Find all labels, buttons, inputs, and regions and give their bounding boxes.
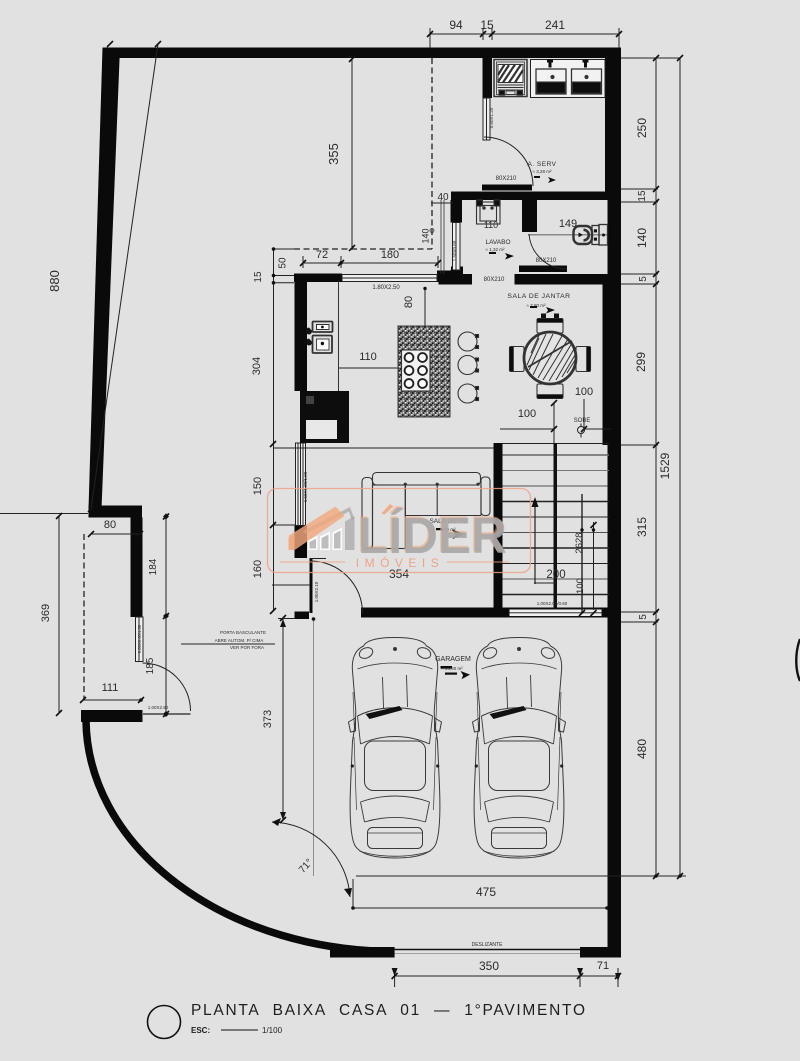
svg-text:880: 880	[47, 270, 62, 292]
svg-text:100: 100	[575, 386, 593, 398]
svg-text:80: 80	[403, 296, 415, 308]
svg-text:2628: 2628	[574, 532, 585, 553]
svg-text:140: 140	[421, 228, 431, 243]
svg-text:SALA DE JANTAR: SALA DE JANTAR	[507, 293, 570, 300]
svg-text:1529: 1529	[658, 452, 672, 479]
svg-text:DESLIZANTE: DESLIZANTE	[472, 942, 504, 948]
svg-text:≈ 3,28 m²: ≈ 3,28 m²	[533, 169, 552, 174]
svg-text:94: 94	[449, 18, 463, 32]
svg-text:VER POR FORA: VER POR FORA	[230, 645, 264, 650]
svg-text:184: 184	[148, 558, 159, 575]
svg-text:71: 71	[597, 960, 609, 972]
svg-text:LAVABO: LAVABO	[485, 239, 510, 246]
svg-text:0.80X0.60/1.50: 0.80X0.60/1.50	[137, 624, 142, 653]
svg-text:15: 15	[480, 18, 494, 32]
svg-text:1.00X2.00/0.60: 1.00X2.00/0.60	[537, 601, 568, 606]
svg-text:475: 475	[476, 885, 496, 899]
svg-text:350: 350	[479, 959, 499, 973]
svg-text:GARAGEM: GARAGEM	[435, 656, 471, 663]
svg-text:SOBE: SOBE	[574, 418, 591, 424]
svg-text:80: 80	[104, 519, 116, 531]
svg-text:1.50X0.60: 1.50X0.60	[452, 240, 457, 261]
svg-text:100: 100	[518, 408, 536, 420]
svg-text:299: 299	[634, 352, 648, 372]
svg-text:≈ 1,32 m²: ≈ 1,32 m²	[486, 247, 505, 252]
svg-text:373: 373	[262, 710, 274, 728]
svg-text:50: 50	[278, 257, 289, 269]
svg-text:180: 180	[381, 249, 399, 261]
svg-text:ABRE AUTOM. P/ CIMA: ABRE AUTOM. P/ CIMA	[215, 638, 264, 643]
svg-text:480: 480	[635, 739, 649, 759]
svg-text:160: 160	[252, 560, 264, 578]
svg-text:80X210: 80X210	[484, 277, 505, 283]
svg-text:5: 5	[638, 276, 649, 282]
svg-text:185: 185	[145, 657, 156, 674]
svg-text:0.60X1.20: 0.60X1.20	[489, 107, 494, 128]
svg-text:200: 200	[546, 569, 565, 581]
svg-text:369: 369	[40, 604, 52, 622]
svg-text:15: 15	[637, 190, 648, 202]
svg-text:1.00X2.50: 1.00X2.50	[148, 705, 169, 710]
svg-text:241: 241	[545, 18, 565, 32]
svg-text:72: 72	[316, 249, 328, 261]
svg-text:15: 15	[253, 271, 264, 283]
svg-text:1.50X1.20/1.00: 1.50X1.20/1.00	[303, 471, 308, 502]
svg-text:1.80X2.50: 1.80X2.50	[372, 285, 400, 291]
svg-text:1/100: 1/100	[262, 1026, 283, 1035]
svg-text:IMÓVEIS: IMÓVEIS	[356, 555, 445, 570]
svg-text:111: 111	[102, 682, 119, 694]
svg-text:80X210: 80X210	[536, 258, 557, 264]
svg-text:250: 250	[635, 118, 649, 138]
svg-text:315: 315	[635, 517, 649, 537]
svg-text:PLANTA BAIXA CASA 01 — 1°PAVIM: PLANTA BAIXA CASA 01 — 1°PAVIMENTO	[191, 1002, 587, 1019]
svg-text:ESC:: ESC:	[191, 1026, 210, 1035]
svg-text:355: 355	[326, 143, 341, 165]
svg-text:40: 40	[437, 192, 449, 203]
svg-text:80X210: 80X210	[496, 176, 517, 182]
svg-text:304: 304	[251, 357, 263, 375]
svg-text:140: 140	[635, 228, 649, 248]
svg-text:A. SERV: A. SERV	[527, 161, 556, 168]
svg-text:5: 5	[638, 614, 649, 620]
svg-text:150: 150	[252, 477, 264, 495]
svg-text:1.00X2.10: 1.00X2.10	[314, 581, 319, 602]
svg-text:100: 100	[575, 578, 586, 594]
svg-text:PORTA BASCULANTE: PORTA BASCULANTE	[220, 630, 266, 635]
svg-text:110: 110	[359, 351, 377, 363]
